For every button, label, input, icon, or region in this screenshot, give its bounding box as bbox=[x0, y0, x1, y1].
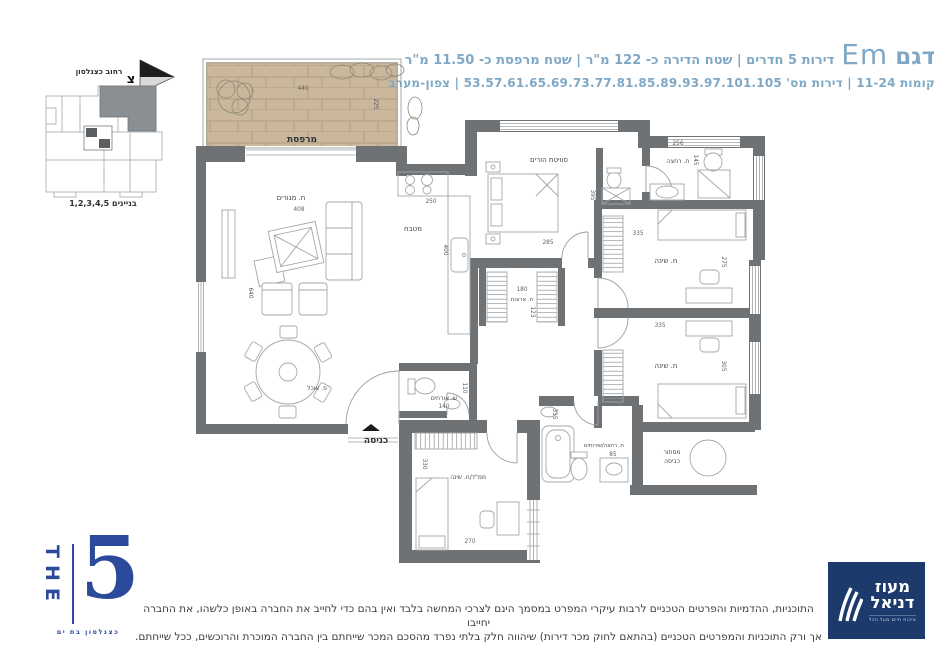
room-label-guest-wc: ש. אורחים bbox=[431, 395, 457, 402]
room-label-bedroom1: ח. שינה bbox=[655, 257, 678, 265]
developer-logo: מעוז דניאל איכות חיים מעל הכל bbox=[828, 562, 925, 639]
window-master-top bbox=[500, 121, 618, 131]
window-right-upper bbox=[754, 156, 764, 200]
dim-living-h: 640 bbox=[247, 287, 253, 298]
model-label: דגם bbox=[895, 44, 935, 70]
dim-bedroom2-w: 335 bbox=[654, 323, 665, 329]
dim-mamad-h: 330 bbox=[421, 458, 427, 469]
the5-logo: THE 5 כצנלסון בת ים bbox=[36, 540, 140, 639]
room-label-mamad: ממ"ד/ח. שינה bbox=[450, 474, 486, 481]
north-letter: צ bbox=[127, 72, 136, 87]
dim-bedroom2-h: 305 bbox=[720, 360, 726, 371]
dim-master-w: 285 bbox=[542, 240, 553, 246]
room-label-laundry-2: כביסה bbox=[664, 458, 680, 465]
room-label-bath-top: ח. רחצה bbox=[667, 158, 690, 165]
apartment-specs: דירות 5 חדרים | שטח הדירה כ- 122 מ"ר | ש… bbox=[405, 53, 835, 68]
window-balcony-door bbox=[246, 150, 356, 155]
dim-closets-w: 180 bbox=[516, 287, 527, 293]
room-label-laundry-1: מסתור bbox=[664, 449, 681, 456]
disclaimer: התוכניות, ההדמיות והפרטים הטכניים לרבות … bbox=[135, 603, 822, 645]
dim-bath-top-w: 256 bbox=[672, 141, 683, 147]
bedroom2-door bbox=[598, 318, 628, 348]
window-living-left bbox=[196, 282, 206, 352]
dim-balcony-w: 440 bbox=[297, 86, 308, 92]
dim-living-w: 408 bbox=[293, 207, 304, 213]
room-label-kitchen: מטבח bbox=[404, 225, 422, 233]
dim-closets-h: 123 bbox=[529, 306, 535, 317]
window-bedroom2 bbox=[750, 342, 760, 394]
dim-bath-main-w: 85 bbox=[609, 452, 617, 458]
the5-logo-subtitle: כצנלסון בת ים bbox=[36, 628, 140, 636]
room-label-bedroom2: ח. שינה bbox=[655, 362, 678, 370]
bedroom1-door bbox=[598, 278, 628, 308]
developer-tagline: איכות חיים מעל הכל bbox=[869, 615, 916, 623]
dim-mamad-w: 270 bbox=[464, 539, 475, 545]
mamad-door bbox=[487, 433, 517, 463]
bath-top-fixtures bbox=[650, 149, 730, 200]
room-label-dining: פ. אוכל bbox=[307, 385, 327, 392]
dim-bath-main-h: 315 bbox=[551, 408, 557, 419]
developer-name-2: דניאל bbox=[869, 595, 916, 612]
dim-bath-top-h: 145 bbox=[692, 154, 698, 165]
living-room-furniture bbox=[222, 202, 362, 315]
developer-sails-icon bbox=[837, 580, 863, 622]
dim-guest-wc-w: 140 bbox=[438, 404, 449, 410]
header-line1: דגם Em דירות 5 חדרים | שטח הדירה כ- 122 … bbox=[388, 38, 935, 71]
model-name: Em bbox=[841, 38, 888, 71]
kitchen-fixtures bbox=[398, 172, 470, 334]
dim-master-h: 395 bbox=[589, 189, 595, 200]
suite-door bbox=[562, 232, 588, 258]
keyplan-core bbox=[84, 126, 112, 150]
mamad-furniture bbox=[415, 433, 519, 550]
room-label-master: סוויטת הורים bbox=[530, 156, 568, 164]
room-label-bath-main: ח. רחצה/שירותים bbox=[584, 443, 624, 449]
page-header: דגם Em דירות 5 חדרים | שטח הדירה כ- 122 … bbox=[388, 38, 935, 90]
header-line2: קומות 11-24 | דירות מס' 53.57.61.65.69.7… bbox=[388, 76, 935, 90]
disclaimer-line2: אך ורק התוכניות והמפרטים הטכניים (בהתאם … bbox=[135, 631, 822, 645]
window-bedroom1 bbox=[750, 266, 760, 314]
dim-guest-wc-h: 110 bbox=[461, 382, 467, 393]
dining-furniture bbox=[244, 326, 333, 418]
the5-logo-the: THE bbox=[41, 545, 63, 608]
entrance-door bbox=[346, 371, 399, 424]
dim-bedroom1-w: 335 bbox=[632, 231, 643, 237]
dim-bedroom1-h: 275 bbox=[720, 256, 726, 267]
street-label: רחוב כצנלסון bbox=[76, 67, 123, 76]
window-mamad bbox=[527, 500, 540, 560]
brochure-page: רחוב כצנלסון צ בניינים 1,2,3,4,5 bbox=[0, 0, 950, 650]
room-label-entrance: כניסה bbox=[364, 436, 388, 446]
room-label-balcony: מרפסת bbox=[287, 135, 317, 145]
floor-plan-svg: רחוב כצנלסון צ בניינים 1,2,3,4,5 bbox=[0, 0, 950, 650]
laundry-fixtures bbox=[690, 440, 726, 476]
buildings-label: בניינים 1,2,3,4,5 bbox=[69, 199, 137, 208]
disclaimer-line1: התוכניות, ההדמיות והפרטים הטכניים לרבות … bbox=[135, 603, 822, 631]
dim-balcony-h: 225 bbox=[372, 98, 378, 109]
the5-logo-five: 5 bbox=[80, 526, 140, 612]
key-plan: רחוב כצנלסון צ בניינים 1,2,3,4,5 bbox=[46, 60, 174, 208]
dim-kitchen-w: 250 bbox=[425, 199, 436, 205]
entrance-arrow-icon bbox=[362, 424, 380, 431]
the5-logo-divider bbox=[72, 544, 74, 624]
room-label-closets: ח. ארונות bbox=[511, 297, 534, 303]
room-label-living: ח. מגורים bbox=[277, 194, 306, 202]
highlighted-unit bbox=[100, 86, 156, 131]
dim-kitchen-h: 400 bbox=[442, 244, 448, 255]
